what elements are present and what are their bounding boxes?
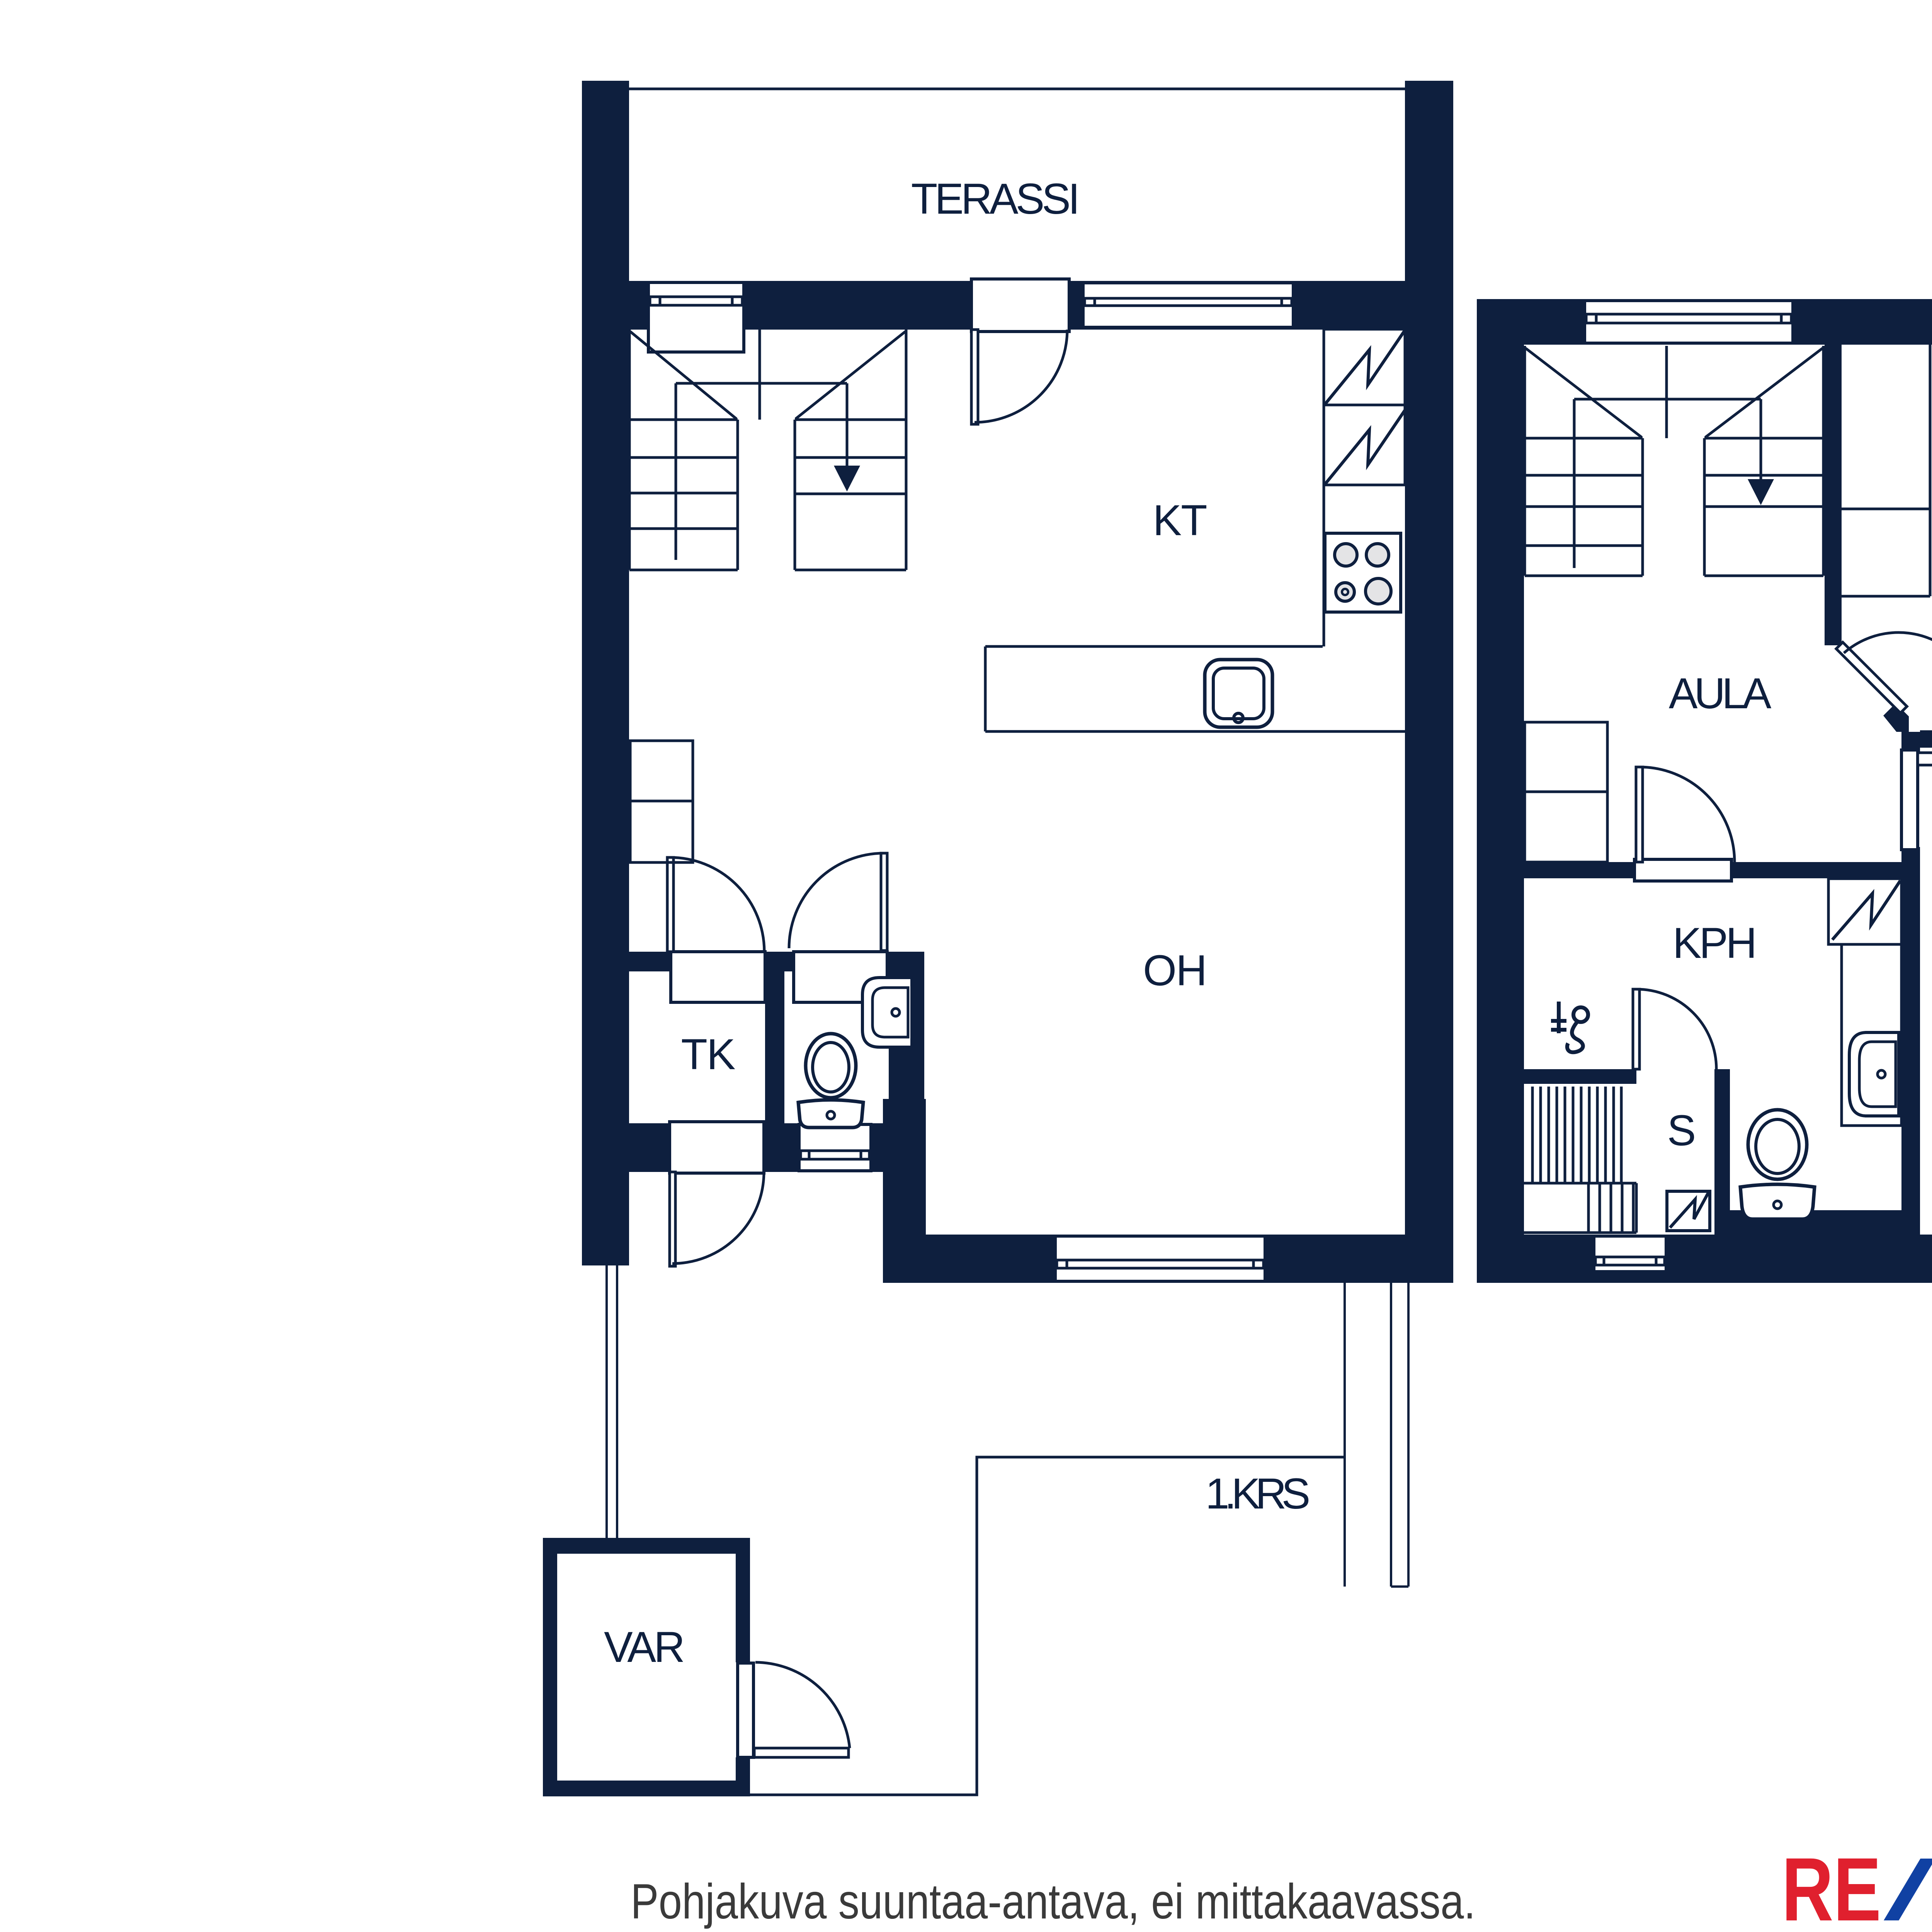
svg-text:TERASSI: TERASSI [911,175,1077,223]
svg-text:RE: RE [1782,1839,1881,1932]
svg-text:AULA: AULA [1669,669,1772,718]
svg-text:1.KRS: 1.KRS [1206,1469,1309,1518]
svg-text:TK: TK [681,1030,735,1078]
svg-text:VAR: VAR [604,1623,683,1671]
svg-text:S: S [1667,1106,1696,1155]
svg-text:KPH: KPH [1673,919,1755,967]
svg-text:OH: OH [1143,946,1206,995]
svg-text:KT: KT [1153,496,1206,544]
svg-text:Pohjakuva suuntaa-antava, ei m: Pohjakuva suuntaa-antava, ei mittakaavas… [631,1874,1476,1929]
